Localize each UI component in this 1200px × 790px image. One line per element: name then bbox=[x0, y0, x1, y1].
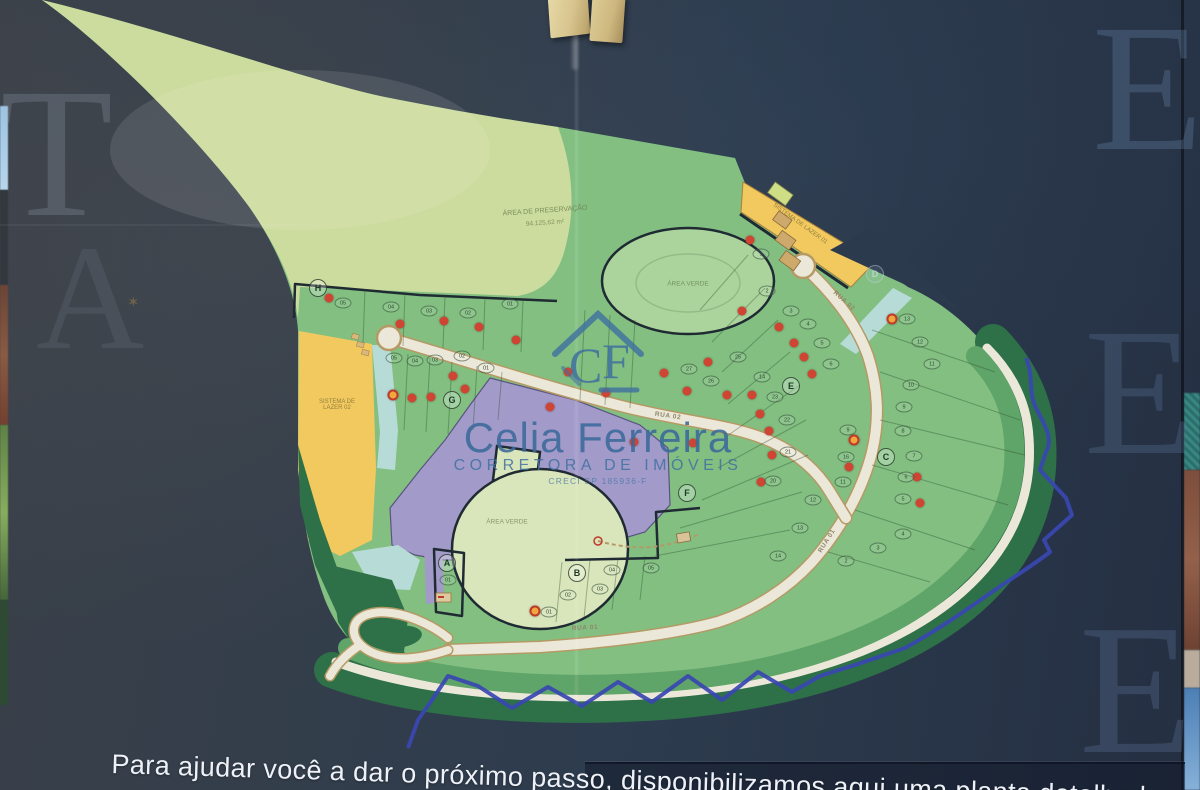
lot-number: 23 bbox=[767, 392, 784, 403]
reserved-lot-dot bbox=[887, 314, 898, 325]
sold-lot-dot bbox=[808, 370, 817, 379]
map-preservation-highlight bbox=[110, 70, 490, 230]
sold-lot-dot bbox=[790, 339, 799, 348]
section-badge-b: B bbox=[568, 564, 586, 582]
lot-number: 04 bbox=[604, 565, 621, 576]
leisure-label-left: SISTEMA DE LAZER 02 bbox=[312, 399, 362, 411]
wall-seam bbox=[0, 224, 295, 226]
sold-lot-dot bbox=[723, 391, 732, 400]
green-area-label-south: ÁREA VERDE bbox=[486, 519, 528, 526]
sold-lot-dot bbox=[916, 499, 925, 508]
sold-lot-dot bbox=[738, 307, 747, 316]
lot-number: 14 bbox=[770, 551, 787, 562]
lot-number: 11 bbox=[924, 359, 941, 370]
sold-lot-dot bbox=[461, 385, 470, 394]
lot-number: 02 bbox=[560, 590, 577, 601]
lot-number: 13 bbox=[792, 523, 809, 534]
broker-tagline: CORRETORA DE IMÓVEIS bbox=[368, 457, 828, 475]
lot-number: 02 bbox=[454, 351, 471, 362]
lot-number: 4 bbox=[895, 529, 912, 540]
lot-number: 7 bbox=[906, 451, 923, 462]
lot-number: 6 bbox=[898, 472, 915, 483]
sold-lot-dot bbox=[449, 372, 458, 381]
lot-number: 01 bbox=[440, 575, 457, 586]
sold-lot-dot bbox=[546, 403, 555, 412]
logo-letter-c: C bbox=[569, 337, 602, 393]
sold-lot-dot bbox=[845, 463, 854, 472]
lot-number: 2 bbox=[759, 286, 776, 297]
lot-number: 13 bbox=[899, 314, 916, 325]
wooden-post-right bbox=[589, 0, 625, 43]
lot-number: 03 bbox=[592, 584, 609, 595]
sold-lot-dot bbox=[427, 393, 436, 402]
section-badge-g: G bbox=[443, 391, 461, 409]
lot-number: 2 bbox=[838, 556, 855, 567]
lot-number: 26 bbox=[703, 376, 720, 387]
lot-number: 25 bbox=[730, 352, 747, 363]
lot-number: 3 bbox=[870, 543, 887, 554]
lot-number: 04 bbox=[407, 356, 424, 367]
section-badge-d: D bbox=[866, 265, 884, 283]
lot-number: 1 bbox=[753, 249, 770, 260]
lot-number: 05 bbox=[643, 563, 660, 574]
sold-lot-dot bbox=[325, 294, 334, 303]
lot-number: 05 bbox=[335, 298, 352, 309]
lot-number: 14 bbox=[754, 372, 771, 383]
lot-number: 4 bbox=[800, 319, 817, 330]
broker-name: Celia Ferreira bbox=[368, 414, 828, 462]
lot-number: 9 bbox=[896, 402, 913, 413]
lot-number: 02 bbox=[460, 308, 477, 319]
sold-lot-dot bbox=[800, 353, 809, 362]
lot-number: 04 bbox=[383, 302, 400, 313]
section-badge-f: F bbox=[678, 484, 696, 502]
section-badge-a: A bbox=[438, 554, 456, 572]
lot-number: 01 bbox=[502, 299, 519, 310]
sold-lot-dot bbox=[748, 391, 757, 400]
lot-number: 11 bbox=[835, 477, 852, 488]
lot-number: 5 bbox=[895, 494, 912, 505]
road-label: RUA 01 bbox=[572, 624, 599, 632]
sold-lot-dot bbox=[440, 317, 449, 326]
lot-number: 01 bbox=[478, 363, 495, 374]
sold-lot-dot bbox=[775, 323, 784, 332]
lot-number: 10 bbox=[903, 380, 920, 391]
sold-lot-dot bbox=[396, 320, 405, 329]
sold-lot-dot bbox=[408, 394, 417, 403]
section-badge-e: E bbox=[782, 377, 800, 395]
lot-number: 01 bbox=[541, 607, 558, 618]
lot-number: 05 bbox=[386, 353, 403, 364]
logo-letter-f: F bbox=[602, 333, 630, 389]
reserved-lot-dot bbox=[530, 606, 541, 617]
lot-number: 03 bbox=[421, 306, 438, 317]
map-kiosk bbox=[676, 532, 690, 543]
lot-number: 12 bbox=[805, 495, 822, 506]
lot-number: 03 bbox=[427, 355, 444, 366]
lot-number: 5 bbox=[814, 338, 831, 349]
wooden-post-left bbox=[548, 0, 591, 38]
sold-lot-dot bbox=[704, 358, 713, 367]
sold-lot-dot bbox=[475, 323, 484, 332]
lot-number: 9 bbox=[840, 425, 857, 436]
lot-number: 12 bbox=[912, 337, 929, 348]
map-green-circle-south bbox=[452, 469, 628, 629]
sold-lot-dot bbox=[746, 236, 755, 245]
reserved-lot-dot bbox=[388, 390, 399, 401]
lot-number: 16 bbox=[838, 452, 855, 463]
sold-lot-dot bbox=[660, 369, 669, 378]
lot-number: 6 bbox=[823, 359, 840, 370]
lot-number: 27 bbox=[681, 364, 698, 375]
photo-of-site-plan-billboard: TAEEE bbox=[0, 0, 1200, 790]
sold-lot-dot bbox=[683, 387, 692, 396]
palm-doodle-icon: ✶ bbox=[127, 293, 140, 311]
section-badge-c: C bbox=[877, 448, 895, 466]
lot-number: 3 bbox=[783, 306, 800, 317]
reserved-lot-dot bbox=[849, 435, 860, 446]
lot-number: 8 bbox=[895, 426, 912, 437]
broker-logo-house-icon: C F bbox=[549, 298, 647, 402]
section-badge-h: H bbox=[309, 279, 327, 297]
sold-lot-dot bbox=[512, 336, 521, 345]
broker-creci: CRECI SP 185936-F bbox=[368, 476, 828, 486]
green-area-label-north: ÁREA VERDE bbox=[667, 281, 709, 288]
